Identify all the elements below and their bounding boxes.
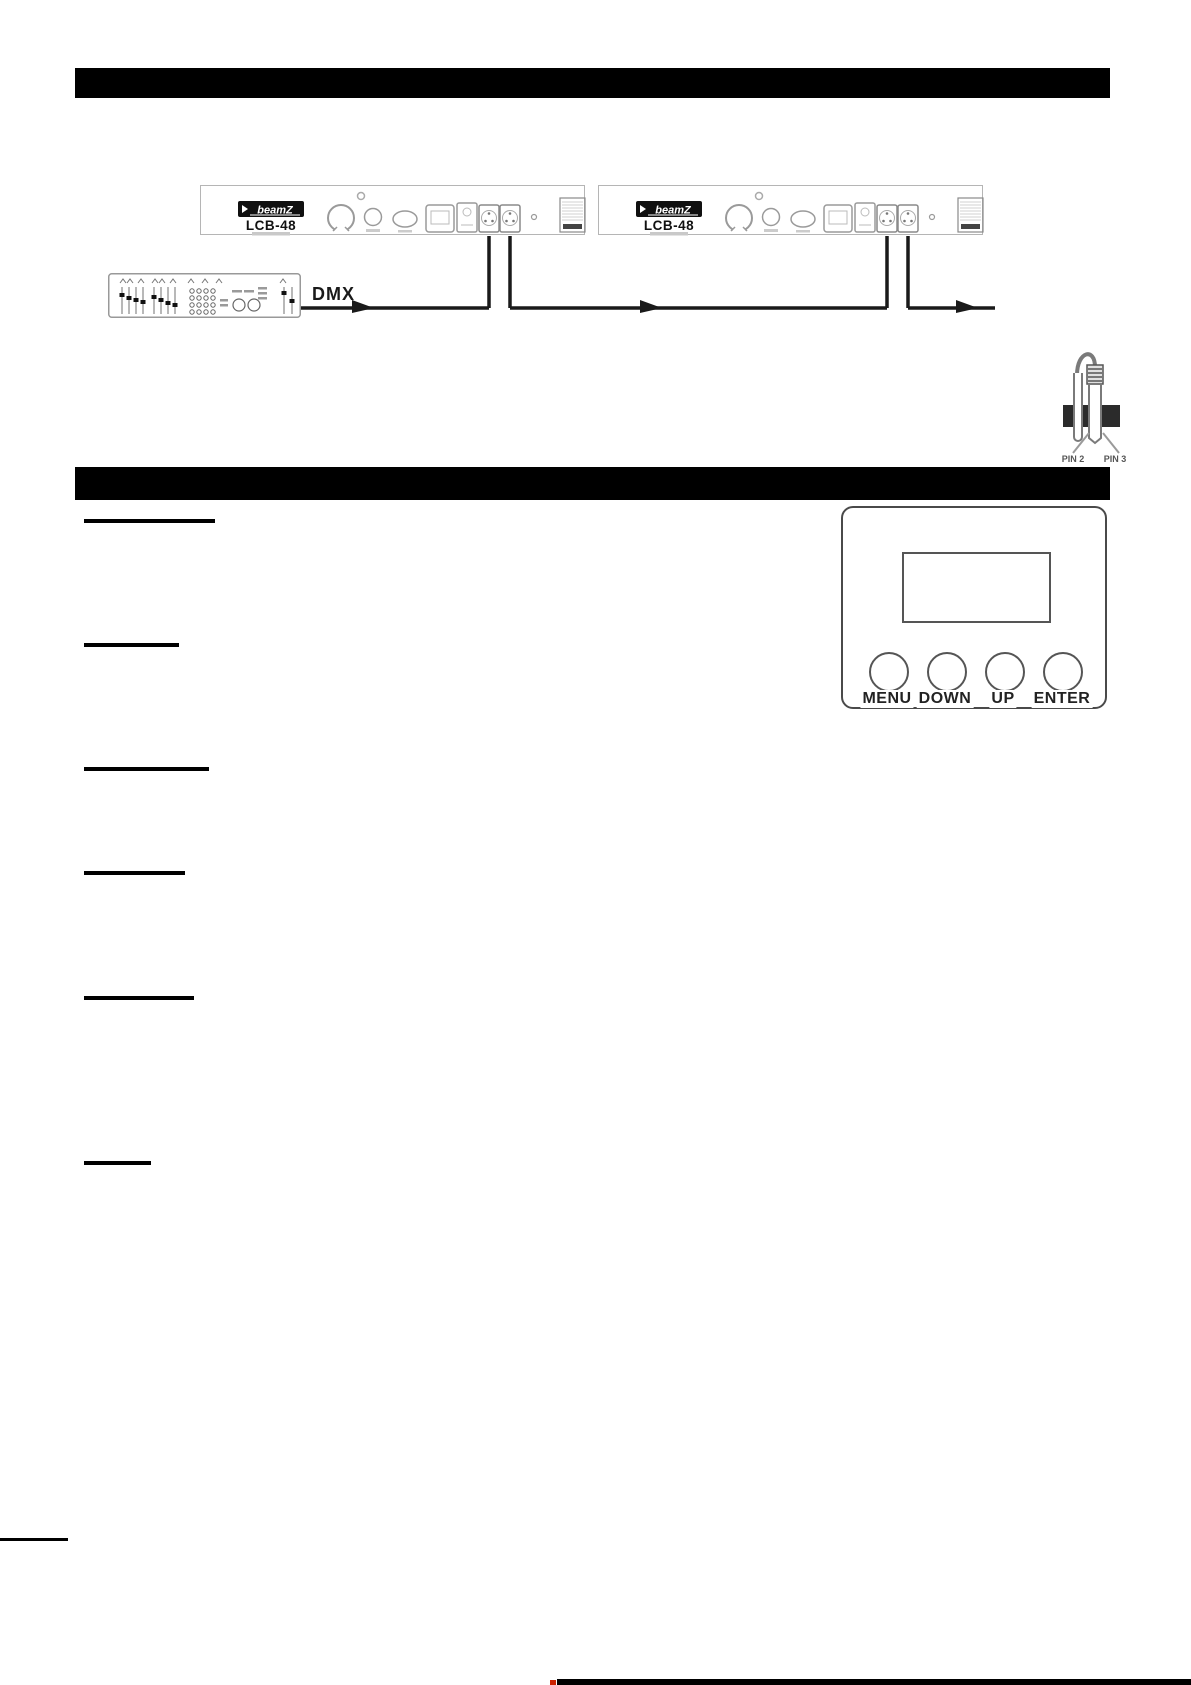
heading-underline-5 — [84, 996, 194, 1000]
pin-3-wire — [1089, 384, 1101, 443]
red-mark — [550, 1680, 556, 1685]
lcb48-device-2: beamZ LCB-48 — [598, 185, 983, 235]
dmx-controller — [108, 273, 301, 318]
model-subtitle-smudge — [650, 232, 688, 236]
fuse-caption-smudge — [796, 230, 810, 233]
heading-underline-6 — [84, 1161, 151, 1165]
heading-underline-1 — [84, 519, 215, 523]
heading-underline-4 — [84, 871, 185, 875]
dmx-terminator-diagram: PIN 2 PIN 3 — [1045, 335, 1145, 467]
menu-button-icon — [869, 652, 909, 692]
enter-button-icon — [1043, 652, 1083, 692]
model-subtitle-smudge — [252, 232, 290, 236]
enter-button-label: ENTER — [1032, 690, 1093, 708]
brand-logo: beamZ — [636, 201, 702, 217]
section-header-bar-settings — [75, 467, 1110, 500]
menu-button-label: MENU — [860, 690, 913, 708]
down-button-label: DOWN — [917, 690, 974, 708]
up-button-label: UP — [989, 690, 1016, 708]
model-label: LCB-48 — [644, 218, 694, 233]
footer-bar — [557, 1679, 1191, 1685]
dmx-cable-label: DMX — [312, 284, 355, 305]
footnote-line — [0, 1538, 68, 1541]
up-button-icon — [985, 652, 1025, 692]
dmx-wiring-lines — [0, 0, 1191, 500]
down-button-icon — [927, 652, 967, 692]
model-label: LCB-48 — [246, 218, 296, 233]
mic-caption-smudge — [764, 229, 778, 232]
manual-page: DMX beamZ LCB-48 — [0, 0, 1191, 1685]
heading-underline-3 — [84, 767, 209, 771]
lcb48-device-1: beamZ LCB-48 — [200, 185, 585, 235]
control-panel-figure: MENU DOWN UP ENTER — [841, 506, 1107, 709]
pin-2-label: PIN 2 — [1062, 454, 1085, 464]
pin-2-wire — [1074, 373, 1082, 441]
brand-logo: beamZ — [238, 201, 304, 217]
pin-3-label: PIN 3 — [1104, 454, 1127, 464]
resistor-icon — [1087, 365, 1103, 384]
lcd-display — [902, 552, 1051, 623]
fuse-caption-smudge — [398, 230, 412, 233]
heading-underline-2 — [84, 643, 179, 647]
mic-caption-smudge — [366, 229, 380, 232]
